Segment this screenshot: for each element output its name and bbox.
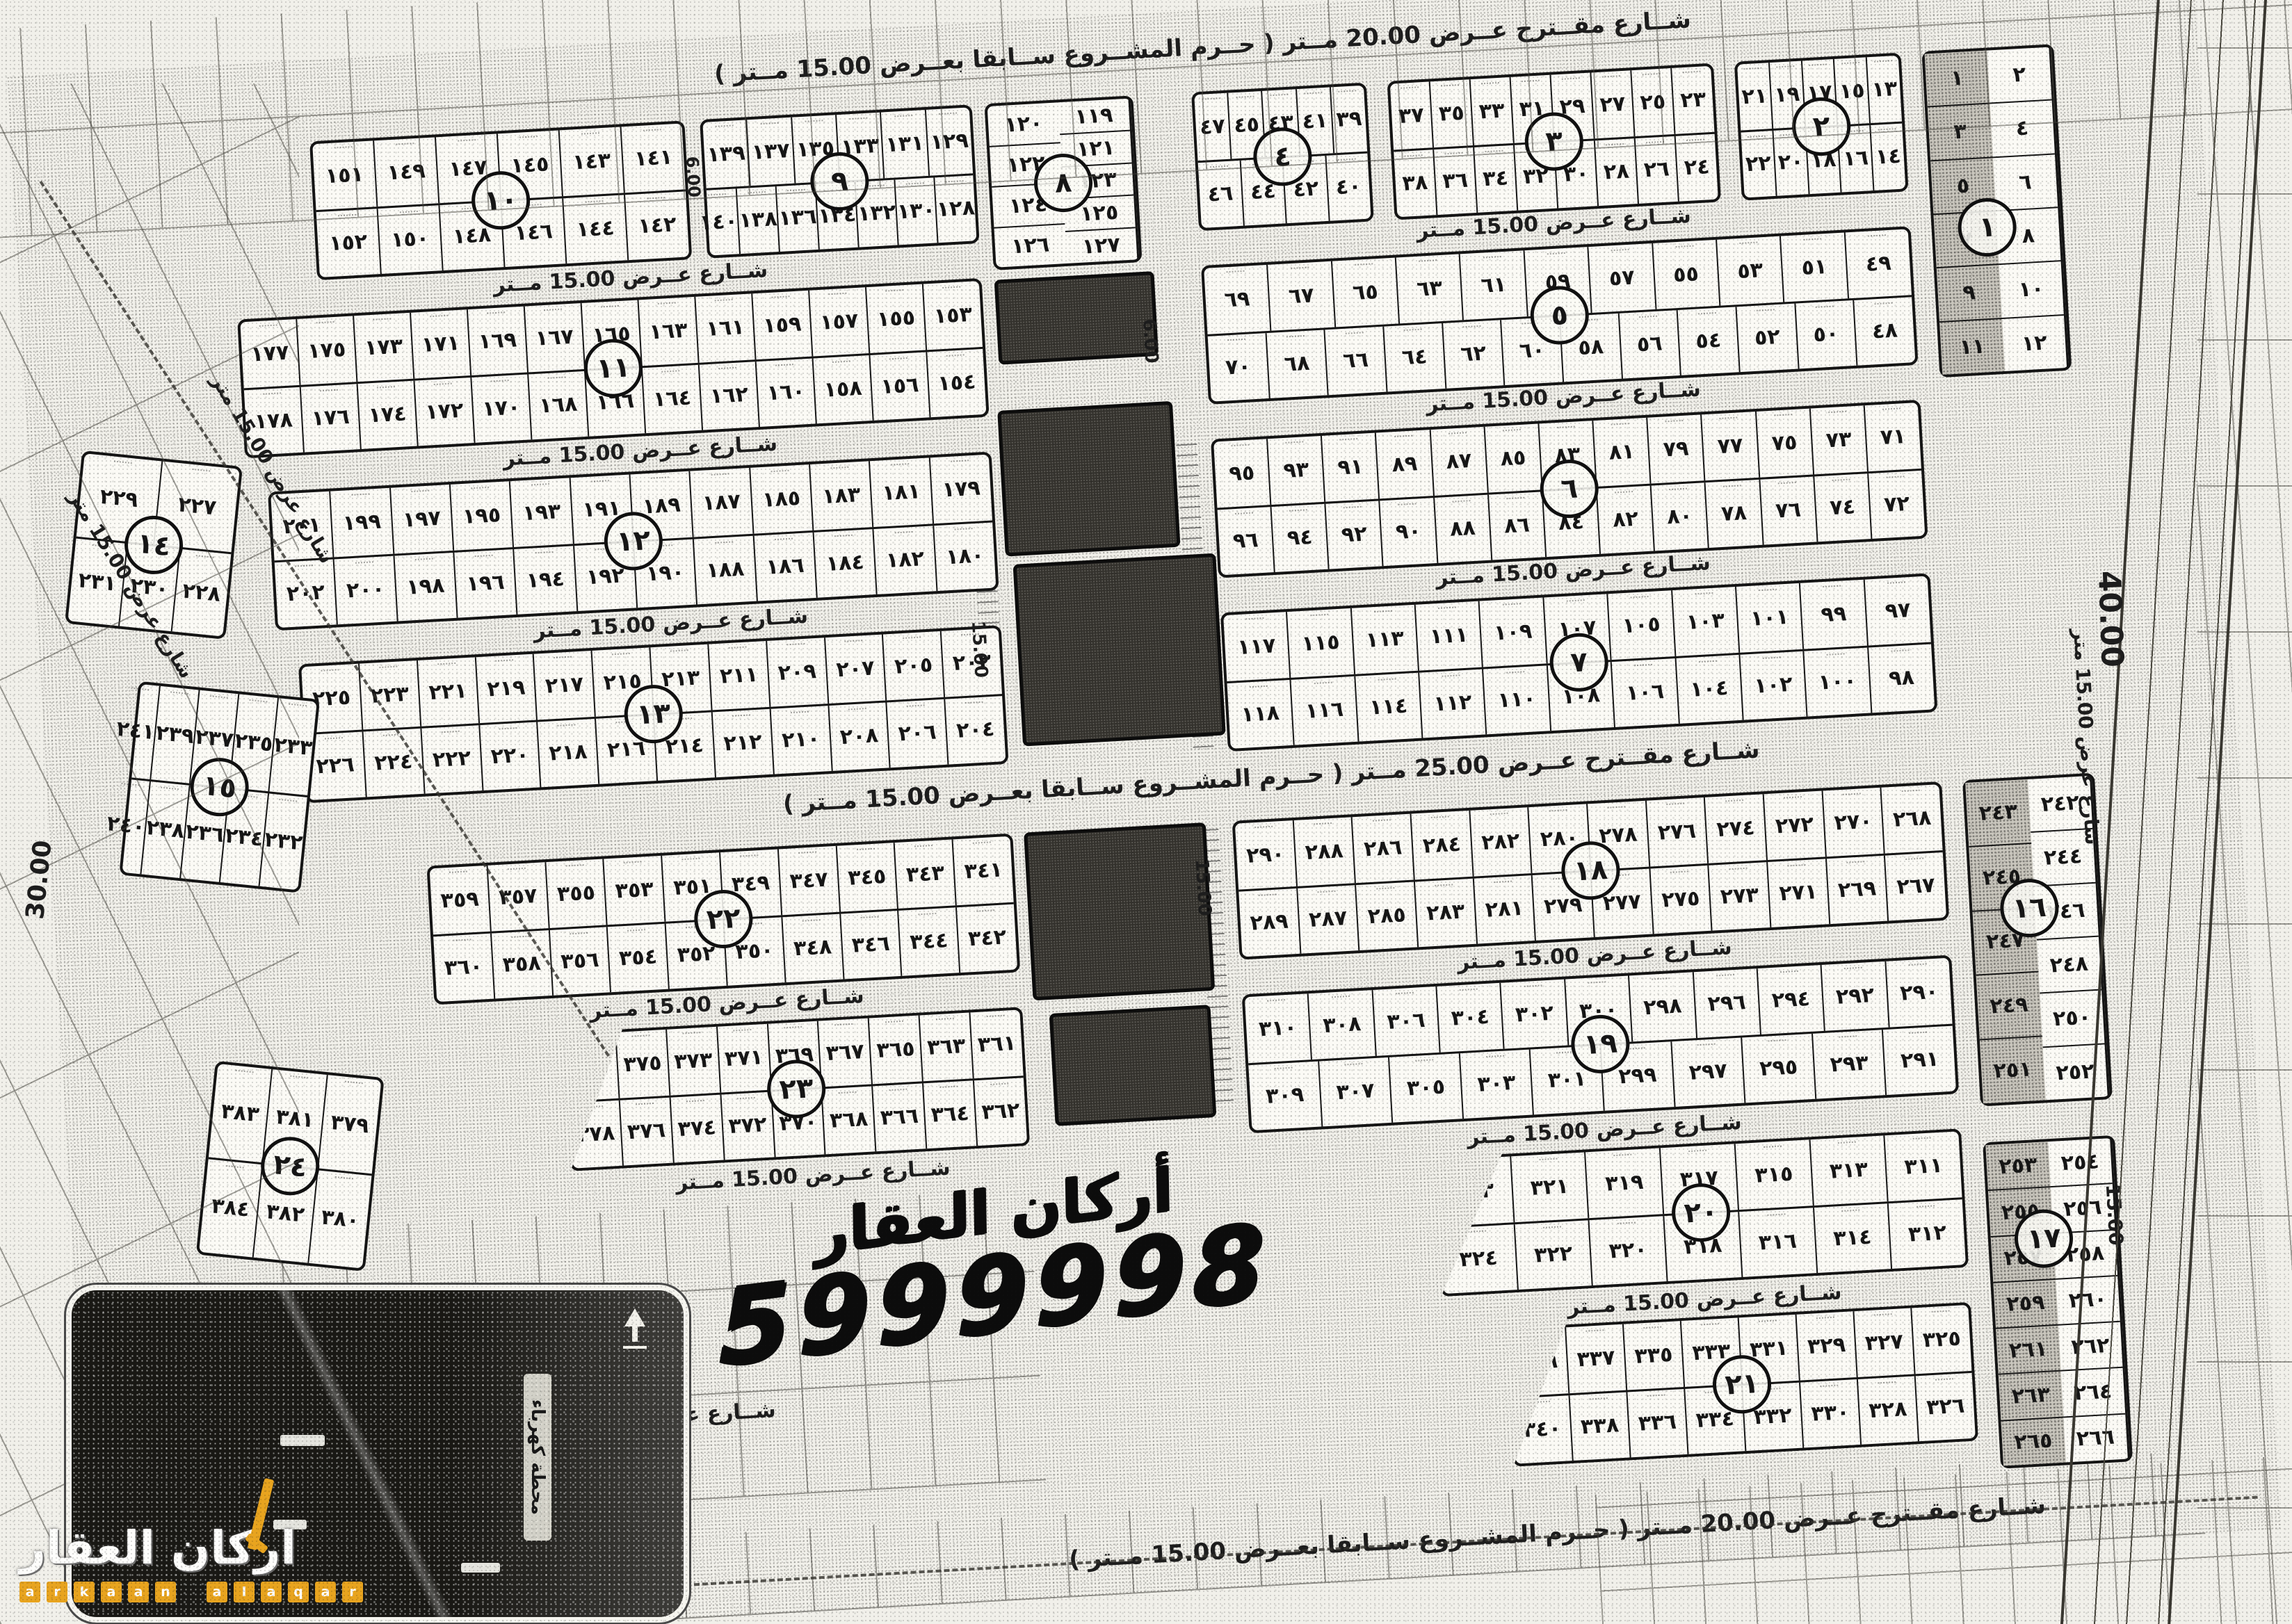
logo-letter: r (47, 1582, 67, 1602)
block-13: ٢٠٣٢٠٥٢٠٧٢٠٩٢١١٢١٣٢١٥٢١٧٢١٩٢٢١٢٢٣٢٢٥٢٠٤٢… (298, 625, 1009, 803)
plot-50: ٥٠ (1795, 300, 1858, 368)
plot-106: ١٠٦ (1612, 658, 1679, 727)
plot-66: ٦٦ (1325, 326, 1388, 395)
plot-93: ٩٣ (1268, 436, 1325, 505)
plot-293: ٢٩٣ (1813, 1030, 1887, 1099)
plot-218: ٢١٨ (538, 718, 599, 787)
plot-159: ١٥٩ (752, 291, 813, 359)
plot-53: ٥٣ (1717, 236, 1784, 306)
plot-170: ١٧٠ (471, 374, 532, 443)
plot-10: ١٠ (1999, 260, 2064, 317)
plot-95: ٩٥ (1213, 439, 1271, 507)
arkan-alaqar-logo: اركان العقار arkaanalaqar (19, 1521, 548, 1602)
plot-54: ٥٤ (1678, 307, 1741, 375)
plot-327: ٣٢٧ (1854, 1308, 1915, 1377)
plot-94: ٩٤ (1272, 503, 1330, 572)
service-block (997, 401, 1180, 557)
plot-342: ٣٤٢ (957, 904, 1017, 973)
plot-179: ١٧٩ (930, 455, 992, 523)
road-width-label: 40.00 (2091, 570, 2130, 668)
plot-205: ٢٠٥ (883, 631, 945, 700)
plot-303: ٣٠٣ (1460, 1049, 1535, 1119)
plot-206: ٢٠٦ (887, 699, 949, 768)
plot-176: ١٧٦ (301, 384, 362, 453)
plot-358: ٣٥٨ (492, 929, 554, 998)
plot-96: ٩٦ (1218, 507, 1275, 576)
plot-272: ٢٧٢ (1764, 790, 1827, 859)
block-23: ٣٦١٣٦٣٣٦٥٣٦٧٣٦٩٣٧١٣٧٣٣٧٥٣٧٧٣٦٢٣٦٤٣٦٦٣٦٨٣… (563, 1007, 1030, 1171)
plot-269: ٢٦٩ (1827, 855, 1889, 924)
plot-180: ١٨٠ (934, 522, 996, 591)
plot-374: ٣٧٤ (670, 1094, 725, 1162)
plot-115: ١١٥ (1287, 608, 1355, 678)
street-label: 6.00 (1138, 318, 1162, 364)
plot-251: ٢٥١ (1980, 1036, 2046, 1104)
logo-latin-letters: arkaanalaqar (19, 1582, 548, 1602)
plot-86: ٨٦ (1489, 492, 1547, 560)
plot-286: ٢٨٦ (1353, 814, 1415, 883)
plot-217: ٢١٧ (534, 651, 596, 720)
plot-273: ٢٧٣ (1709, 862, 1772, 931)
plot-197: ١٩٧ (391, 485, 454, 553)
plot-326: ٣٢٦ (1916, 1372, 1976, 1441)
plot-187: ١٨٧ (691, 468, 754, 537)
plot-105: ١٠٥ (1608, 590, 1675, 660)
plot-275: ٢٧٥ (1650, 865, 1713, 934)
plot-323: ٣٢٣ (1436, 1156, 1515, 1226)
plot-109: ١٠٩ (1480, 597, 1547, 667)
plot-313: ٣١٣ (1810, 1135, 1889, 1205)
plot-212: ٢١٢ (713, 708, 775, 777)
plot-126: ١٢٦ (994, 223, 1067, 268)
plot-296: ٢٩٦ (1693, 968, 1761, 1038)
block-7: ٩٧٩٩١٠١١٠٣١٠٥١٠٧١٠٩١١١١١٣١١٥١١٧٩٨١٠٠١٠٢١… (1220, 573, 1938, 752)
plot-344: ٣٤٤ (898, 907, 960, 976)
plot-209: ٢٠٩ (767, 638, 829, 706)
plot-372: ٣٧٢ (721, 1091, 775, 1160)
plot-102: ١٠٢ (1740, 651, 1807, 720)
plot-195: ١٩٥ (451, 481, 514, 550)
plot-314: ٣١٤ (1814, 1203, 1893, 1273)
plot-194: ١٩٤ (515, 546, 578, 615)
plot-127: ١٢٧ (1065, 227, 1137, 263)
plot-316: ٣١٦ (1739, 1208, 1818, 1277)
plot-261: ٢٦١ (1996, 1324, 2060, 1374)
logo-letter: a (315, 1582, 336, 1602)
plot-90: ٩٠ (1380, 497, 1438, 566)
plot-347: ٣٤٧ (779, 846, 841, 915)
plot-315: ٣١٥ (1736, 1139, 1814, 1209)
street-label: 15.00 (967, 620, 992, 679)
plot-80: ٨٠ (1652, 482, 1709, 551)
inset-station-label: محطة كهرباء (524, 1374, 551, 1541)
plot-340: ٣٤٠ (1512, 1395, 1574, 1464)
plot-208: ٢٠٨ (829, 702, 891, 771)
plot-380: ٣٨٠ (309, 1170, 372, 1269)
plot-89: ٨٩ (1376, 430, 1434, 498)
plot-292: ٢٩٢ (1822, 961, 1889, 1031)
plot-98: ٩٨ (1869, 644, 1935, 713)
plot-379: ٣٧٩ (318, 1075, 382, 1174)
plot-78: ٧٨ (1706, 479, 1764, 548)
plot-284: ٢٨٤ (1411, 811, 1474, 879)
plot-67: ٦٧ (1268, 261, 1335, 331)
plot-220: ٢٢٠ (480, 722, 542, 790)
plot-287: ٢٨٧ (1298, 885, 1360, 954)
plot-259: ٢٥٩ (1993, 1278, 2058, 1328)
plot-112: ١١٢ (1419, 669, 1487, 738)
plot-207: ٢٠٧ (825, 635, 887, 704)
plot-188: ١٨٨ (694, 535, 757, 604)
plot-74: ٧٤ (1814, 473, 1872, 542)
plot-290: ٢٩٠ (1886, 958, 1952, 1027)
plot-56: ٥٦ (1619, 310, 1681, 379)
plot-249: ٢٤٩ (1976, 971, 2042, 1039)
block-20: ٣١١٣١٣٣١٥٣١٧٣١٩٣٢١٣٢٣٣١٢٣١٤٣١٦٣١٨٣٢٠٣٢٢٣… (1433, 1128, 1969, 1297)
plot-375: ٣٧٥ (616, 1030, 670, 1098)
plot-168: ١٦٨ (528, 371, 589, 439)
plot-97: ٩٧ (1864, 576, 1930, 645)
plot-276: ٢٧٦ (1647, 797, 1709, 866)
plot-268: ٢٦٨ (1882, 784, 1943, 853)
plot-263: ٢٦٣ (1999, 1370, 2063, 1420)
plot-61: ٦١ (1460, 250, 1528, 320)
plot-200: ٢٠٠ (334, 555, 398, 624)
plot-163: ١٦٣ (638, 297, 699, 366)
plot-81: ٨١ (1593, 418, 1651, 487)
plot-155: ١٥٥ (866, 284, 927, 353)
plot-368: ٣٦٨ (823, 1086, 877, 1154)
plot-182: ١٨٢ (874, 526, 937, 594)
plot-158: ١٥٨ (814, 355, 874, 423)
inset-label-chip (280, 1435, 325, 1446)
plot-11: ١١ (1939, 318, 2005, 375)
plot-361: ٣٦١ (971, 1009, 1024, 1078)
plot-325: ٣٢٥ (1912, 1305, 1971, 1374)
plot-371: ٣٧١ (718, 1024, 772, 1092)
scanned-subdivision-map: ١٣٥٧٩١١٢٤٦٨١٠١٢١١٣١٥١٧١٩٢١١٤١٦١٨٢٠٢٢٢٢٣٢… (0, 0, 2292, 1624)
plot-77: ٧٧ (1702, 412, 1759, 480)
plot-319: ٣١٩ (1585, 1148, 1664, 1217)
plot-267: ٢٦٧ (1885, 852, 1946, 920)
plot-199: ١٩٩ (331, 488, 394, 557)
plot-161: ١٦١ (695, 293, 756, 362)
plot-55: ٥٥ (1653, 240, 1720, 309)
logo-letter: n (155, 1582, 176, 1602)
plot-330: ٣٣٠ (1800, 1379, 1862, 1447)
plot-291: ٢٩١ (1883, 1025, 1956, 1095)
logo-letter: q (288, 1582, 309, 1602)
plot-312: ٣١٢ (1889, 1199, 1966, 1269)
plot-69: ٦٩ (1204, 265, 1271, 334)
plot-111: ١١١ (1416, 601, 1483, 671)
plot-283: ٢٨٣ (1415, 878, 1478, 947)
plot-363: ٣٦٣ (920, 1012, 974, 1080)
logo-letter: r (342, 1582, 363, 1602)
plot-308: ٣٠٨ (1309, 990, 1376, 1059)
plot-288: ٢٨٨ (1293, 817, 1356, 886)
plot-307: ٣٠٧ (1319, 1057, 1394, 1126)
plot-311: ٣١١ (1885, 1131, 1962, 1201)
plot-274: ٢٧٤ (1705, 794, 1768, 863)
plot-337: ٣٣٧ (1566, 1324, 1627, 1393)
plot-338: ٣٣٨ (1569, 1392, 1631, 1461)
plot-153: ١٥٣ (923, 281, 983, 350)
plot-356: ٣٥٦ (549, 927, 611, 996)
plot-110: ١١٠ (1483, 665, 1551, 735)
plot-193: ١٩٣ (510, 478, 574, 546)
plot-164: ١٦٤ (643, 364, 703, 433)
plot-12: ١٢ (2001, 314, 2067, 371)
plot-362: ٣٦٢ (974, 1078, 1027, 1146)
plot-345: ٣٤٥ (837, 843, 898, 911)
plot-169: ١٦٩ (468, 307, 528, 375)
plot-243: ٢٤٣ (1965, 779, 2031, 846)
plot-285: ٢٨٥ (1356, 882, 1419, 950)
street-label: 15.00 (1191, 859, 1216, 917)
plot-295: ٢٩٥ (1742, 1033, 1816, 1103)
plot-365: ٣٦٥ (869, 1015, 923, 1083)
plot-348: ٣٤٨ (782, 913, 844, 982)
plot-271: ٢٧١ (1768, 859, 1830, 927)
plot-186: ١٨٦ (754, 532, 817, 601)
plot-51: ٥١ (1781, 232, 1848, 302)
plot-341: ٣٤١ (953, 836, 1014, 905)
plot-154: ١٥٤ (927, 348, 986, 417)
plot-248: ٢٤٨ (2036, 936, 2101, 993)
plot-68: ٦٨ (1266, 330, 1329, 398)
plot-87: ٨٧ (1430, 427, 1488, 496)
plot-302: ٣٠٢ (1501, 980, 1569, 1049)
logo-check-icon (241, 1477, 289, 1553)
plot-359: ٣٥٩ (430, 866, 492, 934)
plot-63: ٦٣ (1396, 254, 1464, 323)
plot-103: ١٠٣ (1672, 587, 1740, 656)
plot-282: ٢٨٢ (1470, 807, 1533, 876)
plot-366: ٣٦٦ (873, 1083, 927, 1151)
plot-118: ١١٨ (1227, 679, 1295, 749)
block-22: ٣٤١٣٤٣٣٤٥٣٤٧٣٤٩٣٥١٣٥٣٣٥٥٣٥٧٣٥٩٣٤٢٣٤٤٣٤٦٣… (426, 834, 1020, 1005)
plot-270: ٢٧٠ (1823, 788, 1885, 856)
plot-204: ٢٠٤ (945, 696, 1006, 765)
plot-99: ٩٩ (1800, 580, 1868, 649)
north-arrow-icon (620, 1308, 650, 1357)
plot-181: ١٨١ (870, 457, 933, 526)
plot-310: ٣١٠ (1245, 993, 1312, 1063)
plot-92: ٩٢ (1326, 501, 1384, 569)
plot-79: ٧٩ (1647, 414, 1705, 483)
plot-52: ٥٢ (1736, 303, 1799, 372)
plot-211: ٢١١ (709, 641, 770, 710)
plot-72: ٧٢ (1869, 470, 1925, 539)
plot-57: ٥٧ (1589, 243, 1656, 313)
plot-49: ٤٩ (1845, 229, 1911, 298)
plot-171: ١٧١ (411, 309, 471, 378)
plot-294: ٢٩٤ (1758, 965, 1825, 1034)
plot-305: ٣٠٥ (1389, 1053, 1464, 1123)
plot-184: ١٨٤ (814, 529, 878, 598)
plot-65: ٦٥ (1332, 258, 1400, 327)
plot-113: ١١٣ (1352, 605, 1419, 674)
plot-82: ٨٢ (1597, 485, 1655, 554)
plot-320: ٣٢٠ (1590, 1216, 1668, 1285)
plot-328: ٣٢٨ (1858, 1376, 1919, 1445)
plot-116: ١١٦ (1291, 676, 1359, 745)
logo-word-gap (182, 1582, 200, 1602)
plot-183: ١٨٣ (810, 461, 873, 530)
plot-73: ٧٣ (1811, 405, 1869, 474)
plot-160: ١٦٠ (757, 358, 817, 427)
plot-353: ٣٥٣ (604, 856, 666, 925)
logo-letter: a (101, 1582, 122, 1602)
plot-289: ٢٨٩ (1238, 888, 1301, 957)
plot-373: ٣٧٣ (667, 1027, 721, 1095)
plot-198: ١٩٨ (394, 552, 458, 621)
plot-360: ٣٦٠ (433, 933, 495, 1002)
plot-219: ٢١٩ (476, 654, 538, 723)
plot-114: ١١٤ (1355, 672, 1423, 742)
plot-157: ١٥٧ (809, 287, 870, 356)
logo-letter: a (128, 1582, 149, 1602)
plot-174: ١٧٤ (358, 380, 419, 449)
block-21: ٣٢٥٣٢٧٣٢٩٣٣١٣٣٣٣٣٥٣٣٧٣٣٩٣٢٦٣٢٨٣٣٠٣٣٢٣٣٤٣… (1506, 1302, 1978, 1467)
logo-letter: k (74, 1582, 95, 1602)
plot-70: ٧٠ (1208, 333, 1270, 402)
plot-173: ١٧٣ (354, 313, 414, 382)
logo-letter: a (207, 1582, 227, 1602)
plot-364: ٣٦٤ (923, 1080, 978, 1148)
plot-306: ٣٠٦ (1373, 986, 1440, 1056)
plot-62: ٦٢ (1443, 320, 1506, 389)
service-block (1013, 553, 1226, 747)
plot-377: ٣٧٧ (565, 1032, 620, 1101)
plot-196: ١٩٦ (454, 549, 517, 617)
plot-298: ٢٩٨ (1629, 972, 1697, 1041)
plot-329: ٣٢٩ (1797, 1311, 1858, 1380)
plot-378: ٣٧٨ (570, 1100, 624, 1168)
plot-104: ١٠٤ (1676, 654, 1743, 724)
plot-336: ٣٣٦ (1627, 1388, 1688, 1457)
plot-167: ١٦٧ (525, 303, 586, 372)
logo-letter: a (261, 1582, 282, 1602)
plot-355: ٣٥٥ (546, 859, 608, 927)
plot-376: ٣٧٦ (620, 1097, 675, 1165)
plot-335: ٣٣٥ (1624, 1321, 1685, 1390)
plot-76: ٧٦ (1760, 476, 1818, 545)
plot-91: ٩١ (1322, 433, 1380, 502)
logo-letter: a (19, 1582, 40, 1602)
plot-48: ٤٨ (1855, 297, 1916, 366)
service-block (1049, 1005, 1217, 1126)
plot-117: ١١٧ (1223, 612, 1291, 681)
plot-172: ١٧٢ (414, 377, 475, 446)
plot-321: ٣٢١ (1511, 1152, 1590, 1221)
plot-297: ٢٩٧ (1672, 1037, 1746, 1107)
plot-322: ٣٢٢ (1515, 1220, 1593, 1290)
plot-367: ٣٦٧ (818, 1018, 873, 1087)
plot-221: ٢٢١ (418, 657, 480, 726)
plot-309: ٣٠٩ (1248, 1061, 1323, 1130)
plot-64: ٦٤ (1384, 323, 1446, 391)
plot-253: ٢٥٣ (1985, 1142, 2050, 1189)
plot-339: ٣٣٩ (1508, 1327, 1569, 1396)
plot-290: ٢٩٠ (1235, 820, 1298, 889)
plot-85: ٨٥ (1485, 423, 1542, 492)
plot-9: ٩ (1937, 263, 2002, 320)
plot-75: ٧٥ (1756, 409, 1814, 478)
plot-71: ٧١ (1865, 403, 1921, 471)
plot-346: ٣٤٦ (841, 910, 903, 979)
plot-175: ١٧٥ (297, 316, 357, 384)
plot-343: ٣٤٣ (895, 839, 957, 908)
plot-210: ٢١٠ (770, 706, 832, 774)
plot-156: ١٥٦ (870, 352, 930, 421)
plot-281: ٢٨١ (1474, 875, 1536, 943)
plot-304: ٣٠٤ (1437, 983, 1505, 1053)
plot-185: ١٨٥ (750, 464, 814, 533)
plot-101: ١٠١ (1736, 583, 1804, 653)
service-block (994, 271, 1159, 365)
plot-354: ٣٥٤ (608, 923, 670, 992)
logo-letter: l (234, 1582, 255, 1602)
plot-324: ٣٢٤ (1440, 1224, 1519, 1294)
plot-265: ٢٦٥ (2001, 1416, 2065, 1465)
service-block (1024, 822, 1215, 1000)
plot-100: ١٠٠ (1805, 647, 1872, 717)
plot-162: ١٦٢ (700, 362, 760, 430)
plot-88: ٨٨ (1435, 494, 1492, 563)
